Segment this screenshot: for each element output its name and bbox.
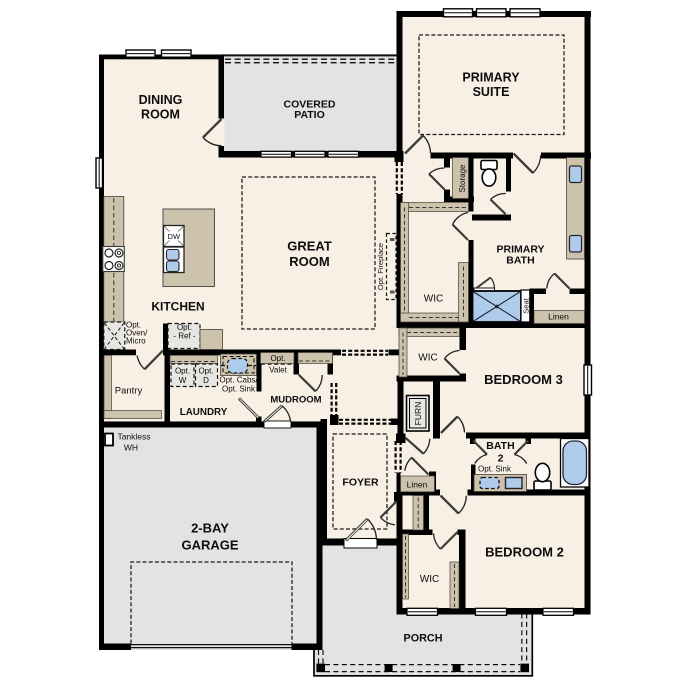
svg-text:Linen: Linen xyxy=(548,312,569,322)
svg-text:Opt. Sink: Opt. Sink xyxy=(222,385,256,394)
svg-text:Valet: Valet xyxy=(269,366,287,375)
svg-text:2: 2 xyxy=(498,453,504,465)
svg-text:BATH: BATH xyxy=(486,440,514,452)
svg-text:SUITE: SUITE xyxy=(473,85,510,99)
svg-text:DINING: DINING xyxy=(139,93,183,107)
svg-text:Tankless: Tankless xyxy=(117,432,150,442)
svg-text:Opt.: Opt. xyxy=(175,367,190,376)
svg-text:PATIO: PATIO xyxy=(294,109,325,121)
svg-text:Micro: Micro xyxy=(126,337,146,346)
svg-text:BATH: BATH xyxy=(506,255,534,267)
svg-text:WIC: WIC xyxy=(418,353,437,364)
svg-text:MUDROOM: MUDROOM xyxy=(270,395,321,406)
svg-text:BEDROOM 2: BEDROOM 2 xyxy=(485,545,564,560)
svg-text:Opt. Sink: Opt. Sink xyxy=(478,465,512,474)
svg-text:LAUNDRY: LAUNDRY xyxy=(180,407,228,418)
svg-text:Storage: Storage xyxy=(458,164,467,193)
svg-text:Opt.: Opt. xyxy=(270,354,285,363)
svg-text:FOYER: FOYER xyxy=(342,477,379,489)
svg-text:Seat: Seat xyxy=(522,297,531,313)
svg-text:FURN: FURN xyxy=(413,402,423,426)
svg-text:GARAGE: GARAGE xyxy=(181,538,238,553)
svg-text:DW: DW xyxy=(168,232,181,241)
svg-text:BEDROOM 3: BEDROOM 3 xyxy=(484,372,563,387)
svg-text:WIC: WIC xyxy=(420,574,439,585)
svg-text:GREAT: GREAT xyxy=(287,239,332,254)
svg-text:2-BAY: 2-BAY xyxy=(191,521,229,536)
svg-text:Linen: Linen xyxy=(407,480,428,490)
svg-text:WIC: WIC xyxy=(424,294,443,305)
svg-text:PRIMARY: PRIMARY xyxy=(462,71,520,85)
svg-text:D: D xyxy=(203,376,209,385)
svg-text:- Ref -: - Ref - xyxy=(173,332,196,341)
svg-text:ROOM: ROOM xyxy=(289,254,329,269)
svg-text:WH: WH xyxy=(124,443,138,453)
svg-text:Pantry: Pantry xyxy=(115,386,143,397)
svg-text:KITCHEN: KITCHEN xyxy=(151,300,204,314)
svg-text:Opt. Cabs/: Opt. Cabs/ xyxy=(219,376,258,385)
svg-text:ROOM: ROOM xyxy=(141,108,180,122)
svg-text:W: W xyxy=(179,376,187,385)
svg-text:PORCH: PORCH xyxy=(404,633,443,645)
svg-text:Opt. Fireplace: Opt. Fireplace xyxy=(376,243,385,290)
svg-text:Opt.: Opt. xyxy=(198,367,213,376)
